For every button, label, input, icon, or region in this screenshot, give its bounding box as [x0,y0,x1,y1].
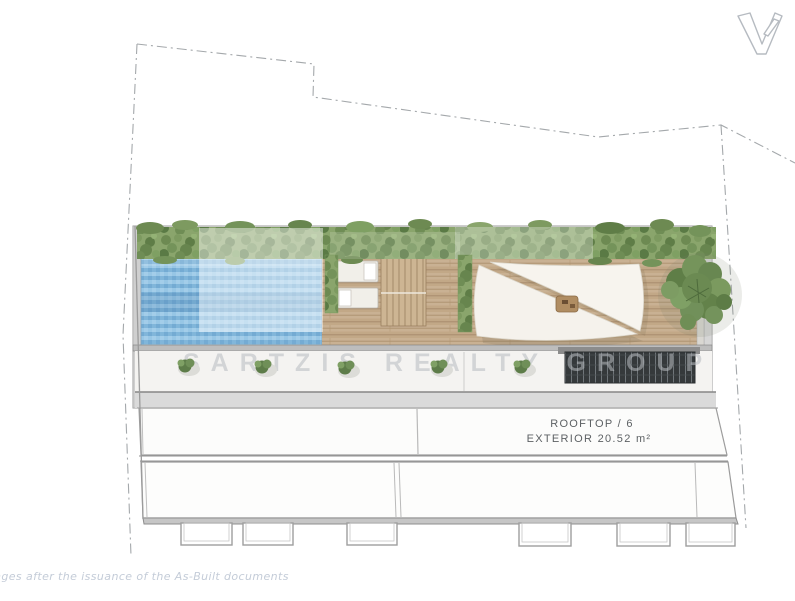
balcony [347,523,397,545]
balcony [617,523,670,546]
parapet-band [135,392,718,408]
brand-v-logo-icon [735,8,787,56]
tree [658,253,742,337]
area-label: EXTERIOR 20.52 m² [527,433,652,445]
floor-plan-drawing: SARTZIS REALTY GROUP ROOFTOP / 6 EXTERIO… [0,0,795,601]
disclaimer-text: nges after the issuance of the As-Built … [0,570,289,583]
unit-highlight-overlay [199,228,323,332]
balcony [519,523,571,546]
balcony [243,523,293,545]
floor-plan-page: SARTZIS REALTY GROUP ROOFTOP / 6 EXTERIO… [0,0,795,601]
room-label: ROOFTOP / 6 [550,418,634,430]
building-lower-floors [139,408,738,524]
deck-table [556,296,578,312]
lounger [337,288,378,308]
deck-stairs [381,258,426,326]
shade-sails [474,262,648,347]
balconies [181,523,735,546]
lounger [337,261,378,282]
balcony [181,523,232,545]
balcony [686,523,735,546]
